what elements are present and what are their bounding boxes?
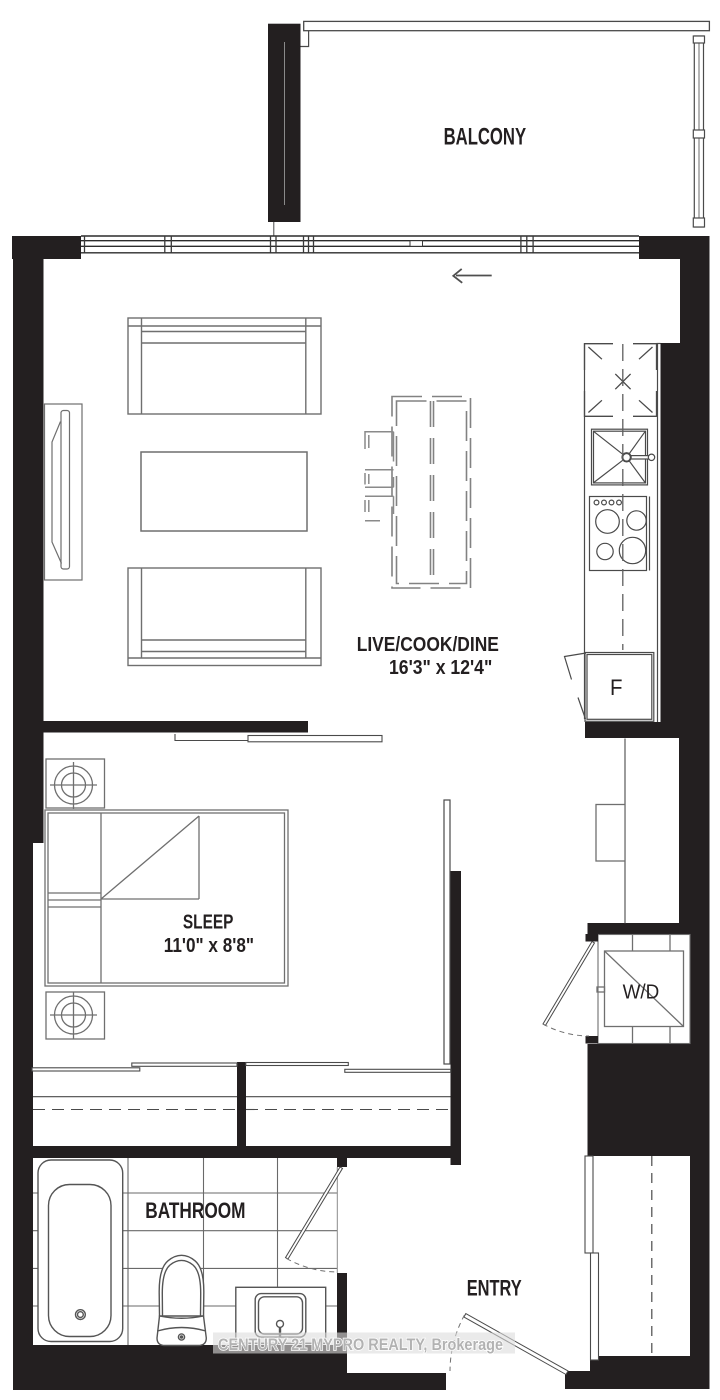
svg-text:W/D: W/D [623, 982, 660, 1004]
svg-text:BALCONY: BALCONY [444, 123, 526, 150]
svg-text:ENTRY: ENTRY [467, 1276, 522, 1301]
svg-text:CENTURY 21 MYPRO REALTY, Broke: CENTURY 21 MYPRO REALTY, Brokerage [218, 1335, 503, 1354]
svg-text:F: F [610, 675, 623, 700]
svg-text:LIVE/COOK/DINE: LIVE/COOK/DINE [357, 634, 499, 656]
svg-text:11'0" x 8'8": 11'0" x 8'8" [164, 935, 254, 957]
svg-text:16'3" x 12'4": 16'3" x 12'4" [389, 657, 492, 679]
svg-text:BATHROOM: BATHROOM [145, 1198, 245, 1223]
svg-text:SLEEP: SLEEP [183, 912, 234, 934]
